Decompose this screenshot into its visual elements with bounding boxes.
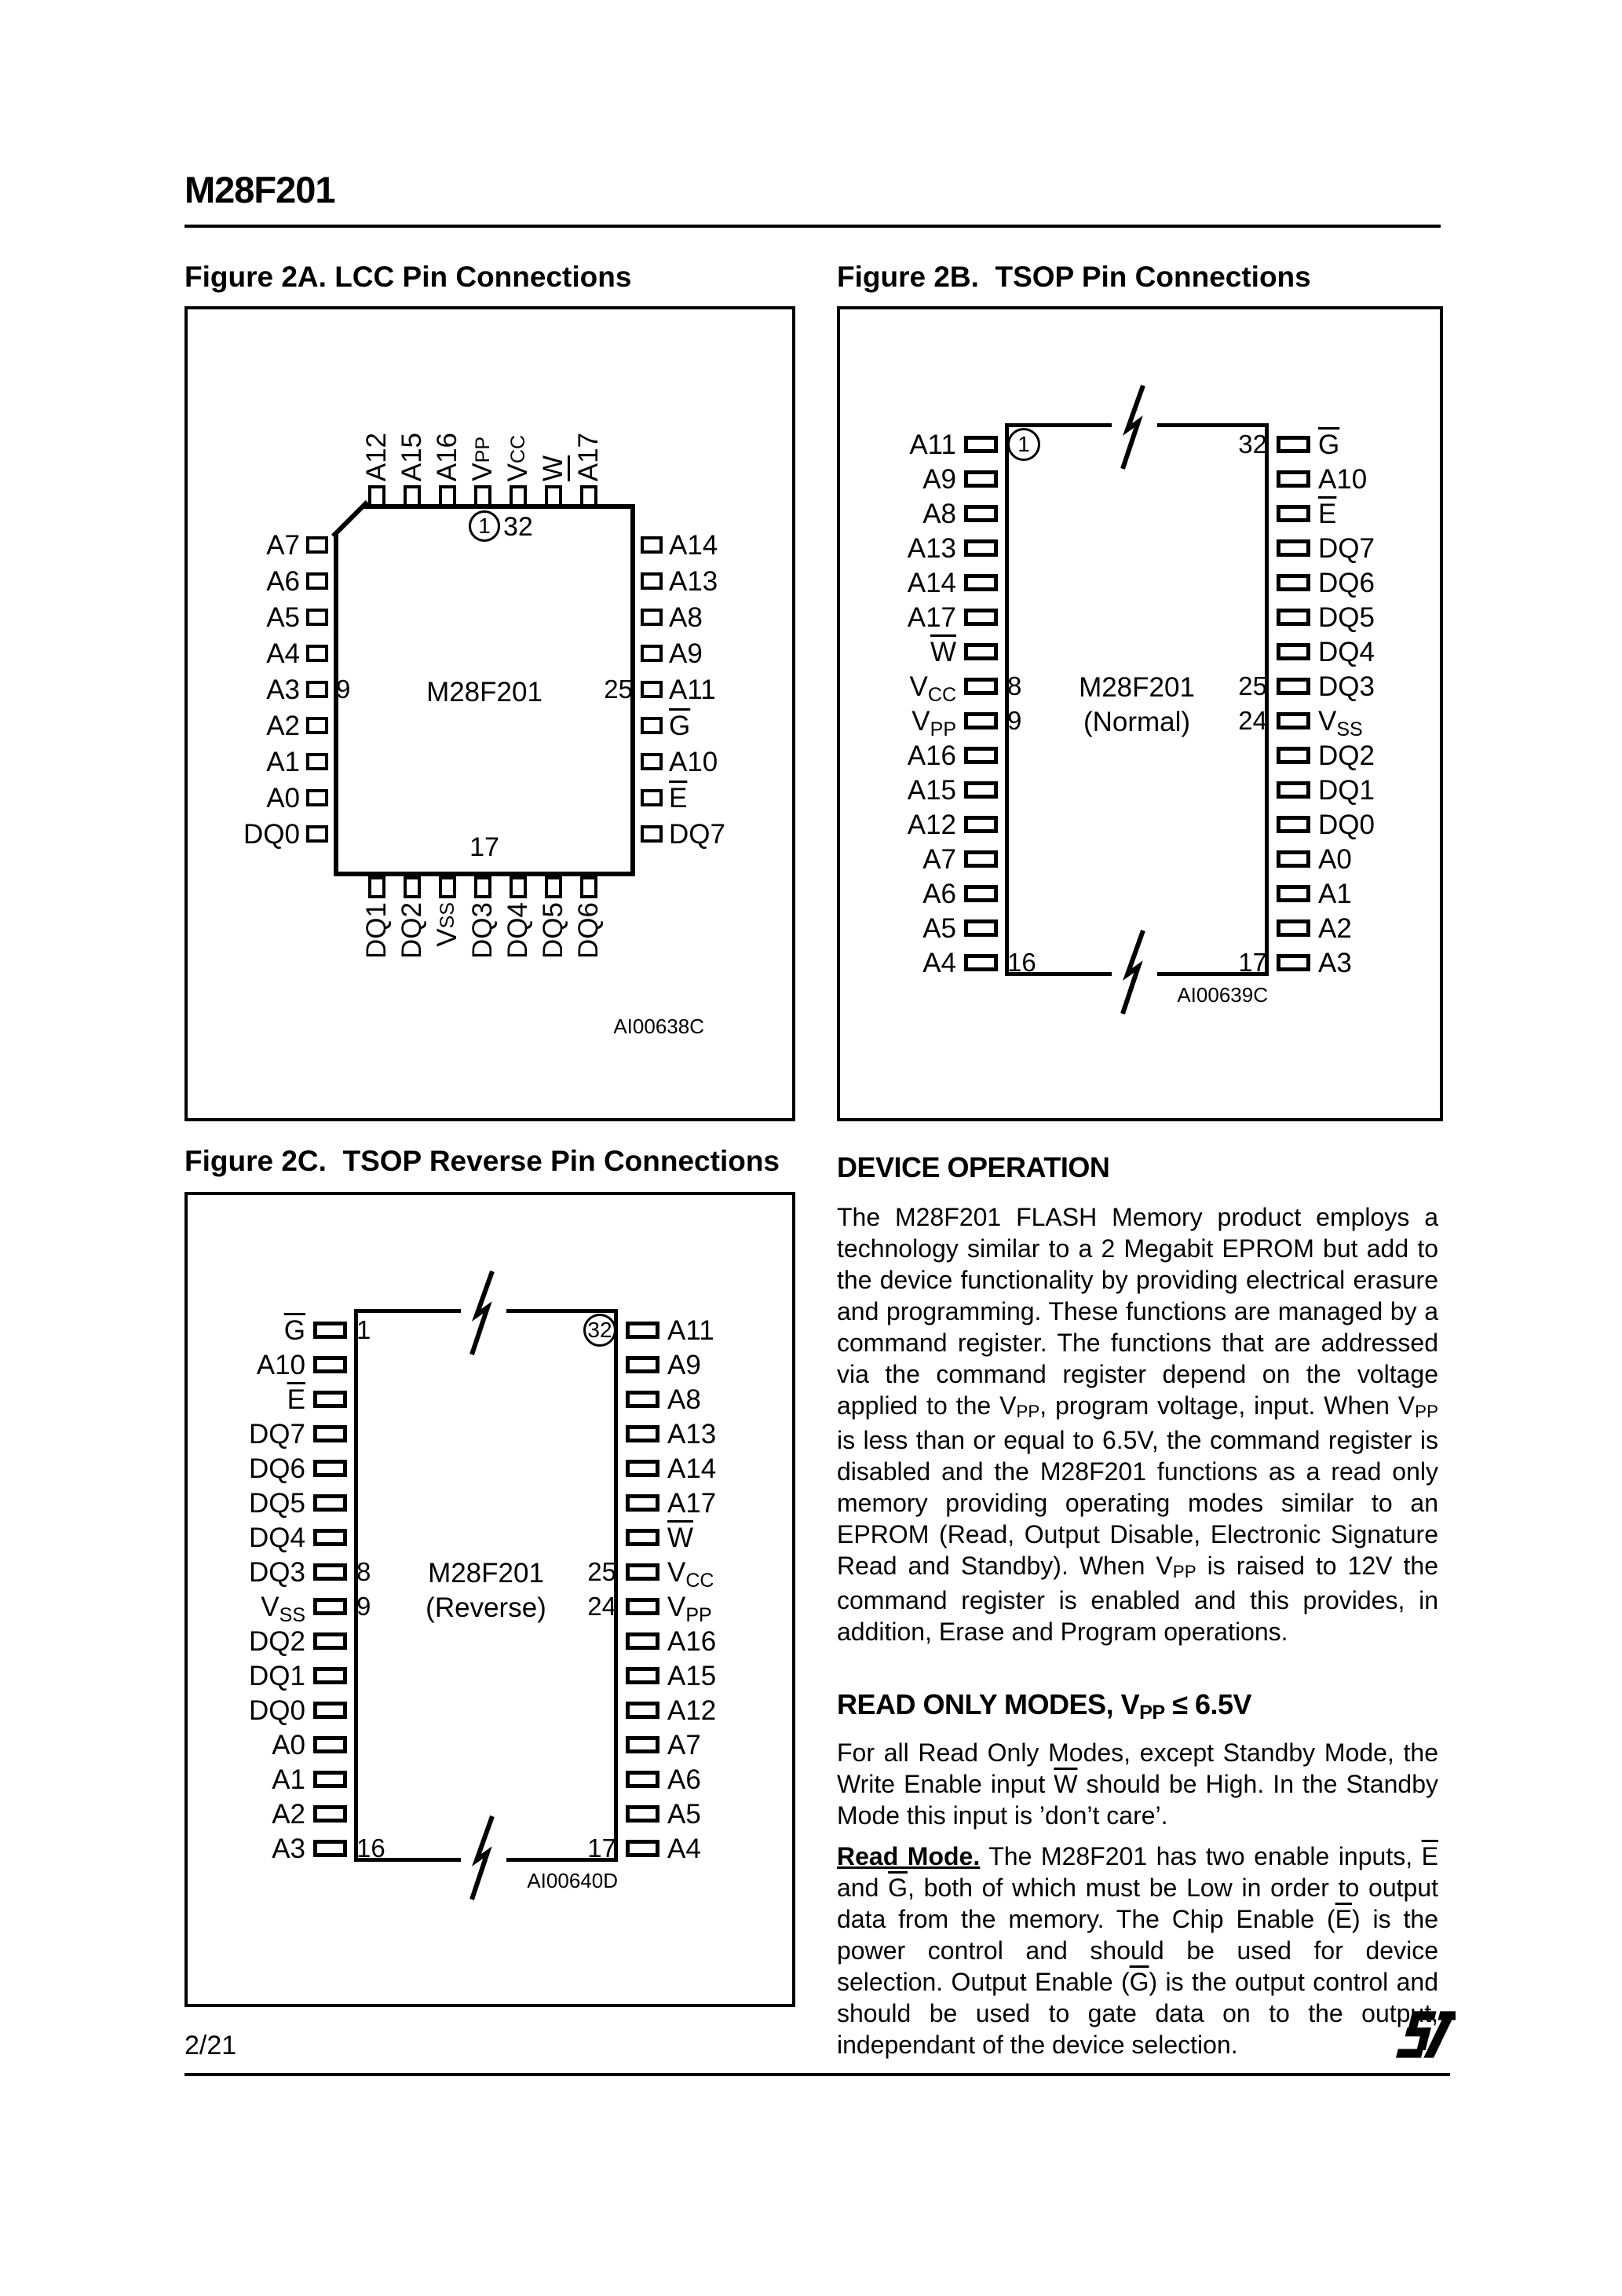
pin-stub bbox=[306, 681, 328, 698]
pin-row: A13 bbox=[573, 1417, 782, 1451]
pin-stub bbox=[1277, 539, 1310, 557]
pin-row: A10 bbox=[1224, 462, 1433, 496]
tsop-right-pin-column: G 32 A10 E DQ7 DQ6 bbox=[1224, 427, 1433, 980]
pin-stub bbox=[313, 1632, 347, 1650]
pin-stub bbox=[964, 747, 998, 764]
pin-row: A6 bbox=[842, 876, 1050, 911]
pin-row: DQ1 bbox=[191, 1658, 400, 1693]
pin-stub bbox=[641, 609, 663, 626]
pin-label: VPP bbox=[469, 437, 496, 481]
pin-label: VCC bbox=[504, 435, 532, 481]
pin-row: A7 bbox=[188, 527, 371, 563]
footer-rule bbox=[184, 2073, 1450, 2076]
pin-label: A4 bbox=[188, 640, 306, 667]
fig2c-title: Figure 2C. TSOP Reverse Pin Connections bbox=[184, 1145, 780, 1178]
pin-row: A12 bbox=[842, 807, 1050, 842]
pin-label: A2 bbox=[188, 712, 306, 740]
pin-number: 32 bbox=[1224, 430, 1277, 459]
pin-stub bbox=[313, 1563, 347, 1581]
pin-label: DQ0 bbox=[1310, 811, 1433, 839]
pin-label: G bbox=[1310, 431, 1433, 459]
pin-label: A5 bbox=[842, 915, 964, 942]
pin: DQ2 bbox=[394, 876, 429, 1112]
pin-stub bbox=[1277, 505, 1310, 522]
pin-label: DQ2 bbox=[398, 902, 426, 959]
pin-label: VCC bbox=[842, 673, 964, 700]
pin-label: DQ4 bbox=[191, 1524, 313, 1552]
pin-stub bbox=[1277, 816, 1310, 833]
pin-row: G 1 bbox=[191, 1313, 400, 1347]
pin-label: A4 bbox=[842, 949, 964, 977]
pin-stub bbox=[1277, 885, 1310, 902]
pin-row: A4 16 bbox=[842, 945, 1050, 980]
pin-label: A17 bbox=[842, 604, 964, 631]
pin-label: A12 bbox=[363, 433, 390, 481]
pin-row: A1 bbox=[1224, 876, 1433, 911]
pin-label: A5 bbox=[659, 1801, 782, 1828]
pin-row: A8 bbox=[842, 496, 1050, 531]
chip-variant: (Reverse) bbox=[354, 1592, 618, 1624]
pin-label: DQ5 bbox=[191, 1490, 313, 1517]
pin-row: G 32 bbox=[1224, 427, 1433, 462]
pin-label: DQ6 bbox=[575, 902, 602, 959]
pin-label: A3 bbox=[191, 1835, 313, 1863]
pin-row: A14 bbox=[573, 1451, 782, 1486]
pin-stub bbox=[626, 1391, 659, 1408]
st-logo-icon bbox=[1380, 2002, 1456, 2067]
pin-label: A11 bbox=[663, 676, 781, 704]
pin-stub bbox=[964, 436, 998, 453]
pin-label: A7 bbox=[188, 532, 306, 559]
pin-label: A5 bbox=[188, 604, 306, 631]
pin-stub bbox=[313, 1356, 347, 1373]
pin-label: E bbox=[663, 784, 781, 812]
pin-label: DQ6 bbox=[191, 1455, 313, 1483]
pin1-marker: 1 bbox=[469, 510, 500, 542]
pin-stub bbox=[1277, 781, 1310, 799]
pin-label: W bbox=[842, 638, 964, 666]
pin-stub bbox=[641, 681, 663, 698]
read-mode-paragraph: Read Mode. The M28F201 has two enable in… bbox=[837, 1841, 1438, 2060]
pin-label: A0 bbox=[188, 784, 306, 812]
pin-stub bbox=[641, 572, 663, 590]
pin-label: A13 bbox=[663, 568, 781, 595]
pin-row: A12 bbox=[573, 1693, 782, 1727]
pin: DQ5 bbox=[535, 876, 571, 1112]
pin-label: DQ0 bbox=[191, 1697, 313, 1724]
pin-stub bbox=[404, 485, 421, 507]
pin-row: A2 bbox=[188, 707, 371, 744]
pin-stub bbox=[964, 850, 998, 868]
pin-label: A1 bbox=[188, 748, 306, 776]
pin-stub bbox=[313, 1494, 347, 1512]
pin-stub bbox=[439, 485, 456, 507]
pin-label: VPP bbox=[659, 1593, 782, 1621]
pin-stub bbox=[626, 1425, 659, 1442]
pin-label: A8 bbox=[663, 604, 781, 631]
pin-label: DQ2 bbox=[191, 1628, 313, 1655]
pin-stub bbox=[964, 712, 998, 729]
pin-number: 17 bbox=[1224, 948, 1277, 978]
pin-row: A13 bbox=[842, 531, 1050, 565]
pin-stub bbox=[641, 789, 663, 806]
pin-stub bbox=[313, 1391, 347, 1408]
break-mark-bottom bbox=[447, 1815, 525, 1901]
pin-stub bbox=[964, 470, 998, 488]
pin-label: A9 bbox=[663, 640, 781, 667]
pin-label: DQ3 bbox=[469, 902, 496, 959]
pin: DQ6 bbox=[571, 876, 606, 1112]
device-operation-section: DEVICE OPERATION The M28F201 FLASH Memor… bbox=[837, 1151, 1438, 2060]
pin-label: W bbox=[539, 455, 567, 481]
pin-row: A6 bbox=[573, 1762, 782, 1797]
pin-label: A2 bbox=[191, 1801, 313, 1828]
chip-variant: (Normal) bbox=[1005, 707, 1269, 738]
pin-label: A6 bbox=[659, 1766, 782, 1793]
pin-label: A0 bbox=[1310, 846, 1433, 873]
pin-row: A9 bbox=[842, 462, 1050, 496]
pin-label: DQ1 bbox=[363, 902, 390, 959]
pin-row: A3 17 bbox=[1224, 945, 1433, 980]
pin-row: A15 bbox=[573, 1658, 782, 1693]
pin-stub bbox=[1277, 919, 1310, 937]
pin-number: 32 bbox=[573, 1314, 626, 1347]
pin-stub bbox=[313, 1667, 347, 1684]
pin-label: A9 bbox=[659, 1351, 782, 1379]
pin-stub bbox=[626, 1529, 659, 1546]
pin-number: 16 bbox=[998, 948, 1050, 978]
pin-stub bbox=[964, 885, 998, 902]
pin-label: A16 bbox=[659, 1628, 782, 1655]
pin-number: 1 bbox=[998, 428, 1050, 461]
figure-ref-code: AI00638C bbox=[613, 1015, 704, 1039]
pin-label: DQ2 bbox=[1310, 742, 1433, 770]
pin-number: 17 bbox=[573, 1834, 626, 1863]
pin-stub bbox=[626, 1356, 659, 1373]
pin-row: A9 bbox=[597, 635, 781, 671]
pin-label: A15 bbox=[659, 1662, 782, 1690]
pin-stub bbox=[1277, 678, 1310, 695]
pin-label: A3 bbox=[188, 676, 306, 704]
pin-number: 1 bbox=[347, 1315, 400, 1345]
pin-row: DQ5 bbox=[191, 1486, 400, 1520]
pin-row: A5 bbox=[573, 1797, 782, 1831]
pin: A12 bbox=[359, 341, 394, 507]
pin-label: A8 bbox=[842, 500, 964, 528]
pin-stub bbox=[313, 1460, 347, 1477]
pin-stub bbox=[1277, 954, 1310, 971]
pin-row: A17 bbox=[842, 600, 1050, 634]
pin-label: A10 bbox=[663, 748, 781, 776]
pin-stub bbox=[964, 678, 998, 695]
pin-label: DQ6 bbox=[1310, 569, 1433, 597]
pin: W bbox=[535, 341, 571, 507]
pin-label: DQ7 bbox=[1310, 535, 1433, 562]
pin-stub bbox=[368, 876, 385, 898]
pin-row: A16 bbox=[573, 1624, 782, 1658]
pin-label: A9 bbox=[842, 466, 964, 493]
pin-label: VPP bbox=[842, 707, 964, 735]
tsop-left-pin-column: A11 1 A9 A8 A13 A14 bbox=[842, 427, 1050, 980]
pin-label: DQ7 bbox=[191, 1420, 313, 1448]
pin-label: DQ4 bbox=[1310, 638, 1433, 666]
page-number: 2/21 bbox=[184, 2031, 236, 2061]
pin-label: A8 bbox=[659, 1386, 782, 1413]
pin-row: G bbox=[597, 707, 781, 744]
device-operation-paragraph: The M28F201 FLASH Memory product employs… bbox=[837, 1201, 1438, 1647]
pin-stub bbox=[964, 609, 998, 626]
tsop-right-pin-column: A11 32 A9 A8 A13 A14 bbox=[573, 1313, 782, 1866]
pin-stub bbox=[313, 1598, 347, 1615]
pin-label: A10 bbox=[1310, 466, 1433, 493]
pin-stub bbox=[510, 876, 527, 898]
pin-stub bbox=[641, 536, 663, 554]
pin-label: A17 bbox=[659, 1490, 782, 1517]
pin-stub bbox=[545, 876, 562, 898]
pin-row: A9 bbox=[573, 1347, 782, 1382]
pin-row: A8 bbox=[573, 1382, 782, 1417]
pin-stub bbox=[313, 1805, 347, 1823]
pin-stub bbox=[313, 1736, 347, 1753]
pin-stub bbox=[313, 1425, 347, 1442]
pin-label: A1 bbox=[1310, 880, 1433, 908]
pin-row: A6 bbox=[188, 563, 371, 599]
pin-row: A2 bbox=[1224, 911, 1433, 945]
read-only-modes-paragraph: For all Read Only Modes, except Standby … bbox=[837, 1737, 1438, 1831]
pin-row: A15 bbox=[842, 773, 1050, 807]
pin-stub bbox=[306, 536, 328, 554]
pin-stub bbox=[626, 1667, 659, 1684]
pin-row: A5 bbox=[842, 911, 1050, 945]
pin-label: A7 bbox=[842, 846, 964, 873]
pin-label: DQ4 bbox=[504, 902, 532, 959]
pin-row: DQ0 bbox=[191, 1693, 400, 1727]
pin-stub bbox=[1277, 712, 1310, 729]
pin-row: E bbox=[1224, 496, 1433, 531]
pin-stub bbox=[1277, 747, 1310, 764]
pin-row: W bbox=[842, 634, 1050, 669]
pin-stub bbox=[313, 1771, 347, 1788]
pin-label: E bbox=[191, 1386, 313, 1413]
pin-stub bbox=[1277, 436, 1310, 453]
pin-row: A16 bbox=[842, 738, 1050, 773]
datasheet-page: { "page": { "header_title": "M28F201", "… bbox=[0, 0, 1622, 2296]
pin-stub bbox=[626, 1736, 659, 1753]
pin-stub bbox=[306, 753, 328, 770]
pin-label: DQ5 bbox=[1310, 604, 1433, 631]
pin-row: A14 bbox=[842, 565, 1050, 600]
pin-stub bbox=[306, 645, 328, 662]
pin-stub bbox=[964, 781, 998, 799]
pin-stub bbox=[626, 1840, 659, 1857]
pin-row: DQ1 bbox=[1224, 773, 1433, 807]
pin: DQ1 bbox=[359, 876, 394, 1112]
pin-label: A16 bbox=[433, 433, 461, 481]
pin-label: DQ3 bbox=[191, 1559, 313, 1586]
pin-row: DQ4 bbox=[191, 1520, 400, 1555]
pin: DQ3 bbox=[465, 876, 500, 1112]
fig2c-tsop-reverse-diagram: G 1 A10 E DQ7 DQ6 bbox=[184, 1192, 795, 2007]
pin: VSS bbox=[429, 876, 465, 1112]
pin-label: A14 bbox=[659, 1455, 782, 1483]
pin-stub bbox=[641, 753, 663, 770]
pin-label: W bbox=[659, 1524, 782, 1552]
break-mark-top bbox=[447, 1270, 525, 1356]
pin-stub bbox=[626, 1322, 659, 1339]
pin-row: A11 32 bbox=[573, 1313, 782, 1347]
pin32-number: 32 bbox=[503, 512, 533, 543]
pin-row: DQ5 bbox=[1224, 600, 1433, 634]
pin-label: A11 bbox=[659, 1317, 782, 1344]
pin-label: A13 bbox=[842, 535, 964, 562]
pin-stub bbox=[1277, 850, 1310, 868]
pin-row: W bbox=[573, 1520, 782, 1555]
pin-stub bbox=[306, 572, 328, 590]
pin-row: A1 bbox=[191, 1762, 400, 1797]
pin-row: DQ6 bbox=[191, 1451, 400, 1486]
pin-stub bbox=[626, 1460, 659, 1477]
lcc-top-pin-row: A12 A15 A16 VPP VCC bbox=[359, 341, 606, 507]
pin-label: A11 bbox=[842, 431, 964, 459]
fig2b-title: Figure 2B. TSOP Pin Connections bbox=[837, 261, 1311, 294]
pin-row: A8 bbox=[597, 599, 781, 635]
pin-label: A13 bbox=[659, 1420, 782, 1448]
pin-label: DQ3 bbox=[1310, 673, 1433, 700]
pin-label: VSS bbox=[191, 1593, 313, 1621]
pin-label: A17 bbox=[575, 433, 602, 481]
pin-row: A17 bbox=[573, 1486, 782, 1520]
pin-stub bbox=[964, 574, 998, 591]
pin-label: DQ1 bbox=[1310, 777, 1433, 804]
pin-stub bbox=[580, 485, 597, 507]
pin-stub bbox=[964, 816, 998, 833]
pin: A16 bbox=[429, 341, 465, 507]
pin-row: DQ7 bbox=[191, 1417, 400, 1451]
pin-label: A3 bbox=[1310, 949, 1433, 977]
pin-number: 16 bbox=[347, 1834, 400, 1863]
pin-stub bbox=[964, 954, 998, 971]
pin-row: A13 bbox=[597, 563, 781, 599]
pin-row: DQ2 bbox=[1224, 738, 1433, 773]
pin: A17 bbox=[571, 341, 606, 507]
pin: DQ4 bbox=[500, 876, 535, 1112]
pin-row: A5 bbox=[188, 599, 371, 635]
pin-stub bbox=[474, 876, 491, 898]
pin-label: A15 bbox=[842, 777, 964, 804]
pin-row: A0 bbox=[191, 1727, 400, 1762]
pin-label: A14 bbox=[663, 532, 781, 559]
pin-row: DQ4 bbox=[1224, 634, 1433, 669]
figure-ref-code: AI00640D bbox=[527, 1869, 618, 1893]
fig2a-title: Figure 2A. LCC Pin Connections bbox=[184, 261, 631, 294]
pin-label: A2 bbox=[1310, 915, 1433, 942]
pin-stub bbox=[404, 876, 421, 898]
pin-label: A12 bbox=[842, 811, 964, 839]
pin-stub bbox=[1277, 609, 1310, 626]
pin-label: G bbox=[191, 1317, 313, 1344]
pin-row: A1 bbox=[188, 744, 371, 780]
lcc-bottom-pin-row: DQ1 DQ2 VSS DQ3 DQ4 bbox=[359, 876, 606, 1112]
pin-label: VCC bbox=[659, 1559, 782, 1586]
pin: A15 bbox=[394, 341, 429, 507]
pin-row: A0 bbox=[188, 780, 371, 816]
pin-label: A10 bbox=[191, 1351, 313, 1379]
pin-stub bbox=[368, 485, 385, 507]
pin-stub bbox=[626, 1563, 659, 1581]
chip-name: M28F201 bbox=[1005, 672, 1269, 704]
pin-stub bbox=[964, 919, 998, 937]
pin-stub bbox=[306, 609, 328, 626]
pin-stub bbox=[474, 485, 491, 507]
pin-row: A0 bbox=[1224, 842, 1433, 876]
pin-stub bbox=[439, 876, 456, 898]
break-mark-bottom bbox=[1098, 929, 1176, 1015]
pin-label: DQ0 bbox=[188, 821, 306, 848]
pin-stub bbox=[510, 485, 527, 507]
pin-row: A3 16 bbox=[191, 1831, 400, 1866]
pin-row: DQ6 bbox=[1224, 565, 1433, 600]
pin-stub bbox=[626, 1771, 659, 1788]
pin-row: A4 17 bbox=[573, 1831, 782, 1866]
pin-label: DQ7 bbox=[663, 821, 781, 848]
pin-stub bbox=[306, 789, 328, 806]
pin-stub bbox=[306, 825, 328, 843]
page-title: M28F201 bbox=[184, 168, 335, 211]
pin-stub bbox=[964, 505, 998, 522]
pin: VPP bbox=[465, 341, 500, 507]
pin-stub bbox=[626, 1598, 659, 1615]
pin-stub bbox=[626, 1632, 659, 1650]
pin-stub bbox=[626, 1494, 659, 1512]
pin-stub bbox=[641, 717, 663, 734]
chip-name: M28F201 bbox=[334, 677, 635, 708]
pin-label: A14 bbox=[842, 569, 964, 597]
pin-stub bbox=[964, 643, 998, 660]
pin17-number: 17 bbox=[334, 832, 635, 863]
pin-stub bbox=[313, 1529, 347, 1546]
pin-label: A7 bbox=[659, 1731, 782, 1759]
pin-label: A6 bbox=[188, 568, 306, 595]
pin-stub bbox=[641, 645, 663, 662]
pin-stub bbox=[313, 1322, 347, 1339]
pin-row: A14 bbox=[597, 527, 781, 563]
pin-row: A4 bbox=[188, 635, 371, 671]
pin-label: DQ1 bbox=[191, 1662, 313, 1690]
pin-label: A12 bbox=[659, 1697, 782, 1724]
device-operation-heading: DEVICE OPERATION bbox=[837, 1151, 1438, 1184]
pin-stub bbox=[1277, 470, 1310, 488]
pin-stub bbox=[545, 485, 562, 507]
fig2a-lcc-diagram: A12 A15 A16 VPP VCC bbox=[184, 306, 795, 1121]
chip-name: M28F201 bbox=[354, 1558, 618, 1589]
pin-label: A6 bbox=[842, 880, 964, 908]
pin-row: A11 1 bbox=[842, 427, 1050, 462]
pin-label: E bbox=[1310, 500, 1433, 528]
pin-stub bbox=[641, 825, 663, 843]
pin-row: A10 bbox=[191, 1347, 400, 1382]
pin-label: VSS bbox=[433, 902, 461, 947]
pin-label: A15 bbox=[398, 433, 426, 481]
pin-label: VSS bbox=[1310, 707, 1433, 735]
pin: VCC bbox=[500, 341, 535, 507]
break-mark-top bbox=[1098, 384, 1176, 470]
pin-row: A10 bbox=[597, 744, 781, 780]
pin-stub bbox=[306, 717, 328, 734]
pin-stub bbox=[313, 1702, 347, 1719]
pin-row: A2 bbox=[191, 1797, 400, 1831]
pin-label: A0 bbox=[191, 1731, 313, 1759]
pin-label: A4 bbox=[659, 1835, 782, 1863]
